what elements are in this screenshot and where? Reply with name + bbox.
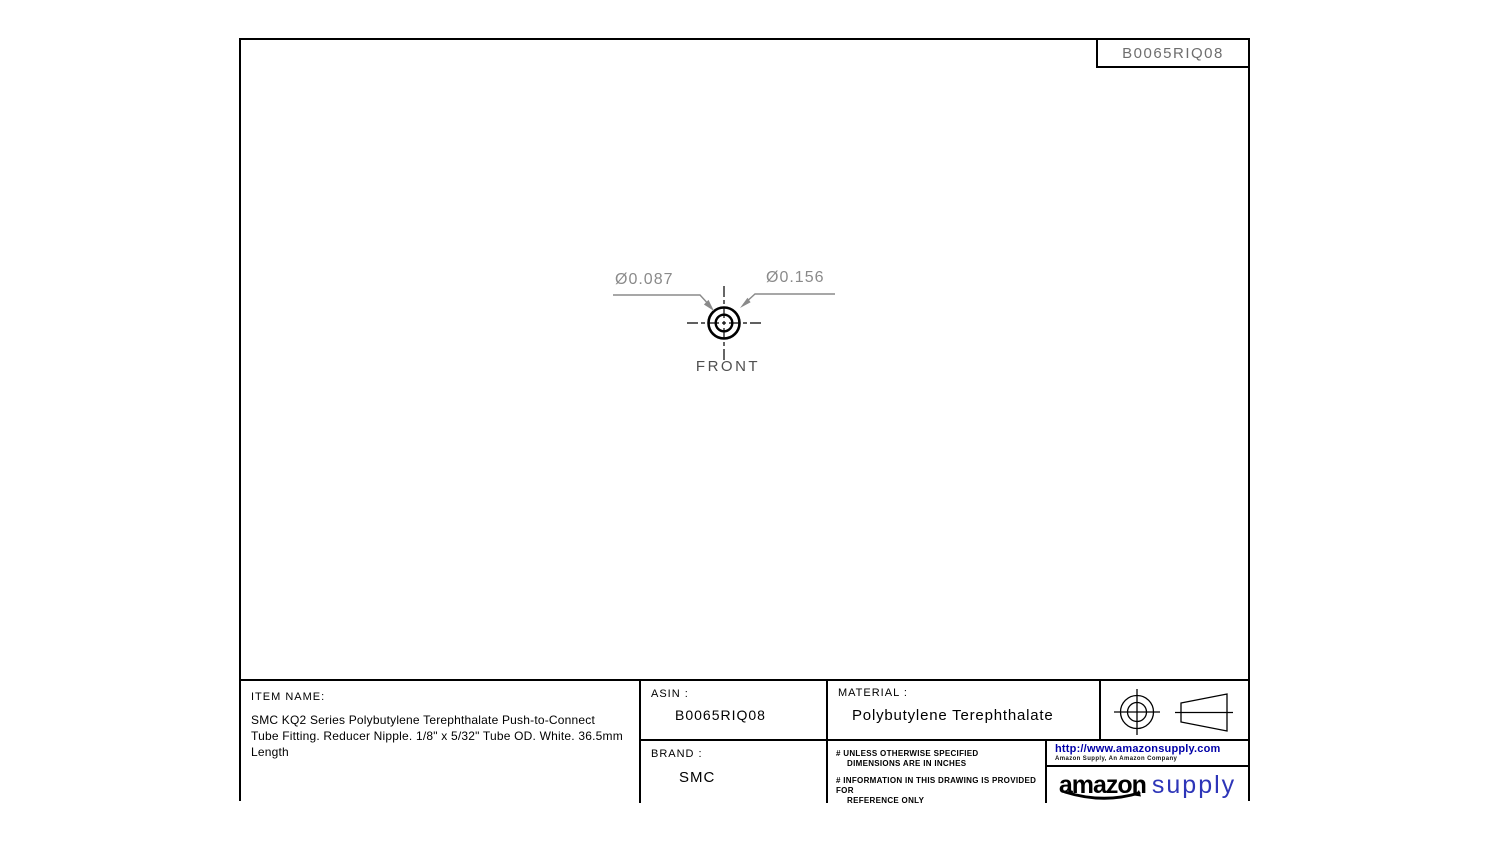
third-angle-projection-icon	[1101, 681, 1250, 739]
drawing-number: B0065RIQ08	[1122, 45, 1224, 62]
item-name-value: SMC KQ2 Series Polybutylene Terephthalat…	[251, 712, 623, 760]
amazon-company-line: Amazon Supply, An Amazon Company	[1055, 756, 1248, 762]
projection-symbol-cell	[1099, 679, 1248, 739]
note-dimensions-line1: # UNLESS OTHERWISE SPECIFIED	[836, 749, 1041, 759]
amazonsupply-url: http://www.amazonsupply.com	[1055, 743, 1248, 755]
drawing-sheet-border: B0065RIQ08 Ø0.087 Ø0.156 FRONT ITEM NAME…	[239, 38, 1250, 801]
note-reference-line1: # INFORMATION IN THIS DRAWING IS PROVIDE…	[836, 776, 1041, 796]
leader-line-outer	[744, 294, 835, 304]
material-value: Polybutylene Terephthalate	[852, 707, 1091, 724]
note-reference-line2: REFERENCE ONLY	[847, 796, 1041, 806]
brand-label: BRAND :	[651, 748, 818, 760]
leader-line-inner	[613, 295, 711, 307]
item-name-cell: ITEM NAME: SMC KQ2 Series Polybutylene T…	[241, 679, 639, 803]
drawing-canvas: B0065RIQ08 Ø0.087 Ø0.156 FRONT ITEM NAME…	[0, 0, 1493, 848]
item-name-label: ITEM NAME:	[251, 691, 629, 703]
amazonsupply-logo: amazon supply	[1045, 765, 1248, 803]
brand-value: SMC	[679, 769, 818, 786]
brand-cell: BRAND : SMC	[639, 739, 826, 803]
supply-logo-text: supply	[1152, 771, 1236, 800]
notes-cell: # UNLESS OTHERWISE SPECIFIED DIMENSIONS …	[826, 739, 1045, 803]
note-reference: # INFORMATION IN THIS DRAWING IS PROVIDE…	[836, 776, 1041, 806]
asin-value: B0065RIQ08	[675, 707, 818, 723]
note-dimensions: # UNLESS OTHERWISE SPECIFIED DIMENSIONS …	[836, 749, 1041, 769]
asin-cell: ASIN : B0065RIQ08	[639, 679, 826, 739]
material-label: MATERIAL :	[838, 687, 1091, 699]
material-cell: MATERIAL : Polybutylene Terephthalate	[826, 679, 1099, 739]
drawing-number-box: B0065RIQ08	[1096, 40, 1248, 68]
asin-label: ASIN :	[651, 688, 818, 700]
dimension-outer-diameter: Ø0.156	[766, 269, 824, 287]
front-view-drawing	[541, 260, 921, 420]
amazon-logo-wordmark: amazon	[1059, 771, 1146, 800]
dimension-inner-diameter: Ø0.087	[615, 271, 673, 289]
note-dimensions-line2: DIMENSIONS ARE IN INCHES	[847, 759, 1041, 769]
amazon-smile-icon	[1063, 790, 1149, 802]
view-label: FRONT	[673, 358, 783, 375]
amazon-url-cell: http://www.amazonsupply.com Amazon Suppl…	[1045, 739, 1248, 765]
